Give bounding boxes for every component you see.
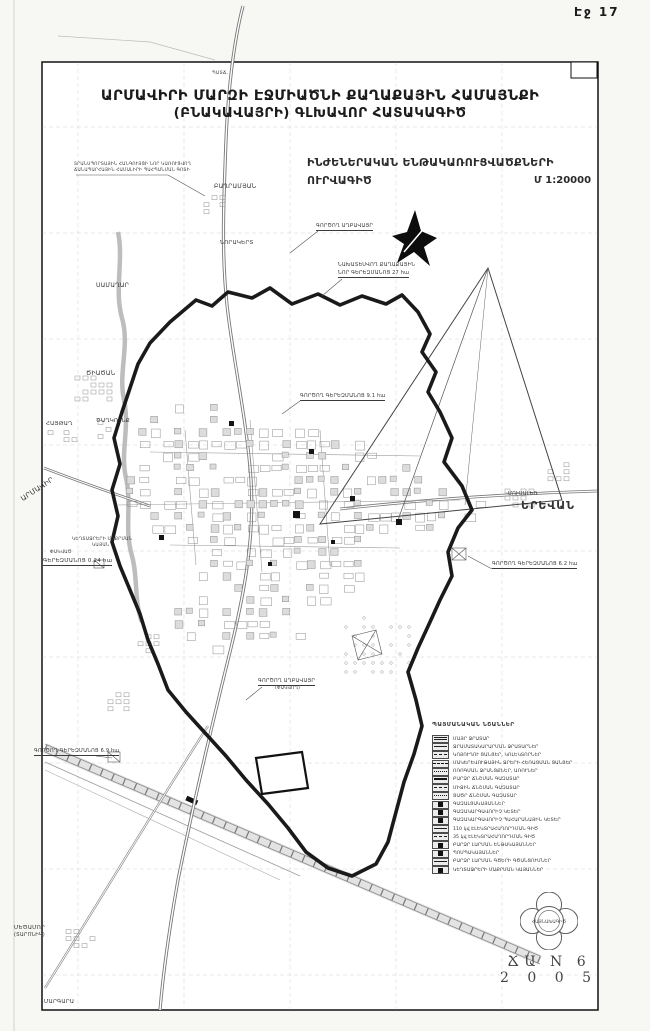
stamp-year: 2 0 0 5 [494,970,604,986]
legend-title: ՊԱՅՄԱՆԱԿԱՆ ՆՇԱՆՆԵՐ [432,722,596,728]
legend-swatch-square [432,841,449,849]
legend-swatch-square [432,850,449,858]
institute-logo: ՀԱՅՆԱԽԱԳԻԾ [520,892,578,950]
map-label: ՃԱՆԱՊԱՐՀԱՅԻՆ ՀԱՄԱԼԻՐԻ ՊԱՀՊԱՆՄԱՆ ԳՈՏԻ [74,169,190,174]
map-label: ՏՐԱՆՍՊՈՐՏԱՅԻՆ ՀԱՆԳՈՒՅՑԻ ՆՈՐ ԿԱՌՈՒՑՎՈՂ [74,163,191,168]
map-label: ԳՈՐԾՈՂ ԱՂԲԱՎԱՅՐ [316,224,373,231]
legend-item: ՑԱԾՐ ՃՆՇՄԱՆ ԳԱԶԱՏԱՐ [432,793,596,799]
legend-item: ՄԱԿԵՐԵՎՈՒԹԱՅԻՆ ՋՐԵՐԻ ՀԵՌԱՑՄԱՆ ՑԱՆՑԵՐ [432,761,596,767]
legend-swatch-dash [432,751,449,759]
map-label: ԿԱՅԱՆ [92,544,109,549]
legend-swatch-solid [432,825,449,833]
map-label: (ՓԱԿՎՈՂ) [275,687,300,692]
legend-item: ՄԻՋԻՆ ՃՆՇՄԱՆ ԳԱԶԱՏԱՐ [432,785,596,791]
map-label: ՆՈՐ ԳԵՐԵԶՄԱՆՈՑ 27 հա [338,271,409,278]
scanned-map-sheet: { "page": { "number_label": "Էջ 17" }, "… [0,0,650,1031]
map-title-line1: ԱՐՄԱՎԻՐԻ ՄԱՐԶԻ ԷՋՄԻԱԾՆԻ ՔԱՂԱՔԱՅԻՆ ՀԱՄԱՅՆ… [55,88,585,104]
map-label: ԳԵՐԵԶՄԱՆՈՑ 0.24 հա [43,558,112,566]
legend-label: ՄԻՋԻՆ ՃՆՇՄԱՆ ԳԱԶԱՏԱՐ [453,786,520,791]
map-label: ՄՈՒՍԱԼԵՌ [508,492,538,498]
map-subtitle-line2: ՈՒՐՎԱԳԻԾ [307,174,372,187]
legend-item: ԲԱՐՁՐ ԼԱՐՄԱՆ ԵՆԹԱԿԱՅԱՆՆԵՐ [432,842,596,848]
legend-item: ԲԱՐՁՐ ՃՆՇՄԱՆ ԳԱԶԱՏԱՐ [432,777,596,783]
frame-corner-box [571,62,597,78]
legend-item: ԿԵՂՏԱՋՐԵՐԻ ՄԱՔՐՄԱՆ ԿԱՅԱՆՆԵՐ [432,867,596,873]
institute-logo-text: ՀԱՅՆԱԽԱԳԻԾ [532,919,566,925]
legend-swatch-solid [432,858,449,866]
map-label: ՊԱՏՃ. [212,72,228,77]
planned-site-outline [256,752,308,794]
legend-swatch-square [432,809,449,817]
map-scale: Մ 1:20000 [534,175,591,186]
legend-item: ՊՈՄՊԱԿԱՅԱՆՆԵՐ [432,851,596,857]
stamp-series: ՃԱ N 6 [494,954,604,970]
map-label: ԵՐԵՎԱՆ [521,500,575,512]
legend-label: ԿԵՂՏԱՋՐԵՐԻ ՄԱՔՐՄԱՆ ԿԱՅԱՆՆԵՐ [453,868,543,873]
stamp: ՀԱՅՆԱԽԱԳԻԾ ՃԱ N 6 2 0 0 5 [494,892,604,986]
map-graphics [0,0,650,1031]
legend-label: ԲԱՐՁՐ ԼԱՐՄԱՆ ԳԾԵՐԻ ԳԾԱՆՑՈՒՄՆԵՐ [453,859,551,864]
legend-label: ԿՈՅՈՒՂՈՒ ՑԱՆՑԵՐ, ԿՈԼԵԿՏՈՐՆԵՐ [453,753,541,758]
legend-label: ԳԱԶԱԿԱՐԳԱՎՈՐԻՉ ԿԵՏԵՐ [453,810,521,815]
legend-item: 35 կվ ԷԼԵԿՏՐԱՀԱՂՈՐԴՄԱՆ ԳԻԾ [432,834,596,840]
map-label: ՓԱԿՎԱԾ [50,551,72,556]
legend-swatch-solid [432,743,449,751]
map-label: ԳՈՐԾՈՂ ԱՂԲԱՎԱՅՐ [258,679,315,686]
legend-swatch-thick [432,776,449,784]
legend-label: ԲԱՐՁՐ ԼԱՐՄԱՆ ԵՆԹԱԿԱՅԱՆՆԵՐ [453,843,536,848]
legend-label: 35 կվ ԷԼԵԿՏՐԱՀԱՂՈՐԴՄԱՆ ԳԻԾ [453,835,535,840]
map-label: ԳՈՐԾՈՂ ԳԵՐԵԶՄԱՆՈՑ 6.9 հա [34,749,119,756]
legend-label: ՈՌՈԳՄԱՆ ՋՐԱՆՑՔՆԵՐ, ԱՌՈՒՆԵՐ [453,769,538,774]
legend-label: ՑԱԾՐ ՃՆՇՄԱՆ ԳԱԶԱՏԱՐ [453,794,517,799]
legend-label: ՄԱԿԵՐԵՎՈՒԹԱՅԻՆ ՋՐԵՐԻ ՀԵՌԱՑՄԱՆ ՑԱՆՑԵՐ [453,761,572,766]
legend-label: ՋՐԱՄԱՏԱԿԱՐԱՐՄԱՆ ՋՐԱՏԱՐՆԵՐ [453,745,538,750]
legend-label: ԲԱՐՁՐ ՃՆՇՄԱՆ ԳԱԶԱՏԱՐ [453,777,520,782]
legend-swatch-dash [432,833,449,841]
legend-item: ԳԱԶԱԿԱՐԳԱՎՈՐԻՉ ԿԵՏԵՐ [432,810,596,816]
map-label: (ՏԱՐՈՆԻԿ) [14,933,45,939]
legend-label: ԳԱԶԱԿԱՐԳԱՎՈՐԻՉ ՊԱՀԱՐԱՆԱՅԻՆ ԿԵՏԵՐ [453,818,561,823]
legend-item: ԿՈՅՈՒՂՈՒ ՑԱՆՑԵՐ, ԿՈԼԵԿՏՈՐՆԵՐ [432,752,596,758]
legend-swatch-dash [432,784,449,792]
map-label: ՀԱՅԹԱՂ [46,421,72,427]
map-title-line2: (ԲՆԱԿԱՎԱՅՐԻ) ԳԼԽԱՎՈՐ ՀԱՏԱԿԱԳԻԾ [55,105,585,121]
legend-label: ԳԱԶԱԼՑԱԿԱՅԱՆՆԵՐ [453,802,505,807]
map-label: ՆԱԽԱՏԵՍՎՈՂ ՔԱՂԱՔԱՅԻՆ [338,263,415,269]
legend-item: 110 կվ ԷԼԵԿՏՐԱՀԱՂՈՐԴՄԱՆ ԳԻԾ [432,826,596,832]
map-label: ՍԱՄԱՂԱՐ [96,283,129,290]
legend-swatch-dot [432,768,449,776]
legend-item: ԲԱՐՁՐ ԼԱՐՄԱՆ ԳԾԵՐԻ ԳԾԱՆՑՈՒՄՆԵՐ [432,859,596,865]
legend-label: 110 կվ ԷԼԵԿՏՐԱՀԱՂՈՐԴՄԱՆ ԳԻԾ [453,827,538,832]
map-label: ՄԵԾԱՄՈՐ [14,925,45,931]
map-label: ԳՈՐԾՈՂ ԳԵՐԵԶՄԱՆՈՑ 6.2 հա [492,562,577,569]
legend-item: ԳԱԶԱԼՑԱԿԱՅԱՆՆԵՐ [432,802,596,808]
legend-swatch-double [432,735,449,743]
legend-item: ԳԱԶԱԿԱՐԳԱՎՈՐԻՉ ՊԱՀԱՐԱՆԱՅԻՆ ԿԵՏԵՐ [432,818,596,824]
legend-item: ՈՌՈԳՄԱՆ ՋՐԱՆՑՔՆԵՐ, ԱՌՈՒՆԵՐ [432,769,596,775]
map-label: ՄԱՐԳԱՐԱ [44,999,74,1005]
legend-swatch-square [432,817,449,825]
legend-label: ՄԱՅՐ ՋՐԱՏԱՐ [453,737,489,742]
legend: ՊԱՅՄԱՆԱԿԱՆ ՆՇԱՆՆԵՐ ՄԱՅՐ ՋՐԱՏԱՐՋՐԱՄԱՏԱԿԱՐ… [432,722,596,875]
legend-rows: ՄԱՅՐ ՋՐԱՏԱՐՋՐԱՄԱՏԱԿԱՐԱՐՄԱՆ ՋՐԱՏԱՐՆԵՐԿՈՅՈ… [432,736,596,873]
legend-swatch-dashdot [432,760,449,768]
map-label: ԾԱՂԿՈՒՆՔ [96,418,130,424]
legend-swatch-square [432,801,449,809]
page-number: Էջ 17 [574,5,620,19]
legend-swatch-square [432,866,449,874]
map-subtitle-line1: ԻՆԺԵՆԵՐԱԿԱՆ ԵՆԹԱԿԱՌՈՒՑՎԱԾՔՆԵՐԻ [307,156,554,169]
map-label: ԳՈՐԾՈՂ ԳԵՐԵԶՄԱՆՈՑ 9.1 հա [300,394,385,401]
map-label: ԾԻԱԾԱՆ [86,371,115,378]
legend-swatch-dot [432,792,449,800]
legend-item: ՄԱՅՐ ՋՐԱՏԱՐ [432,736,596,742]
map-label: ԲԱՂՐԱՄՅԱՆ [214,184,256,191]
map-label: ՆՈՐԱԿԵՐՏ [220,240,253,246]
legend-label: ՊՈՄՊԱԿԱՅԱՆՆԵՐ [453,851,499,856]
legend-item: ՋՐԱՄԱՏԱԿԱՐԱՐՄԱՆ ՋՐԱՏԱՐՆԵՐ [432,744,596,750]
